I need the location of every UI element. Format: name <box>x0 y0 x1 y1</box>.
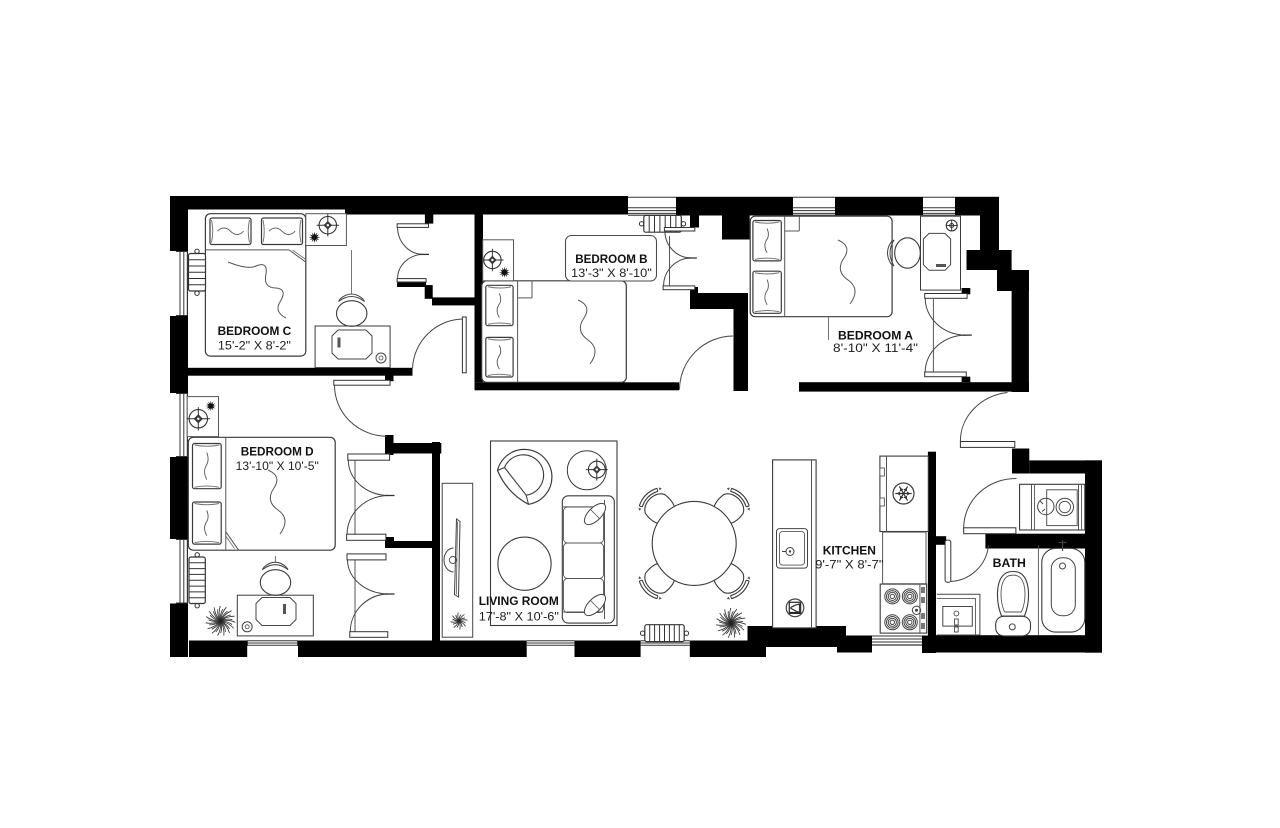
svg-text:13'-10" X 10'-5": 13'-10" X 10'-5" <box>236 459 319 473</box>
svg-text:BEDROOM C: BEDROOM C <box>218 324 292 338</box>
svg-text:LIVING ROOM: LIVING ROOM <box>479 594 559 608</box>
svg-text:BATH: BATH <box>993 556 1026 570</box>
svg-text:13'-3" X 8'-10": 13'-3" X 8'-10" <box>571 266 652 280</box>
svg-text:15'-2" X 8'-2": 15'-2" X 8'-2" <box>218 339 291 353</box>
svg-text:17'-8" X 10'-6": 17'-8" X 10'-6" <box>479 609 559 623</box>
svg-text:8'-10" X 11'-4": 8'-10" X 11'-4" <box>833 341 918 355</box>
svg-text:9'-7" X 8'-7": 9'-7" X 8'-7" <box>815 558 883 572</box>
svg-text:KITCHEN: KITCHEN <box>823 543 876 557</box>
svg-text:BEDROOM B: BEDROOM B <box>575 252 647 266</box>
svg-text:BEDROOM D: BEDROOM D <box>241 444 314 458</box>
